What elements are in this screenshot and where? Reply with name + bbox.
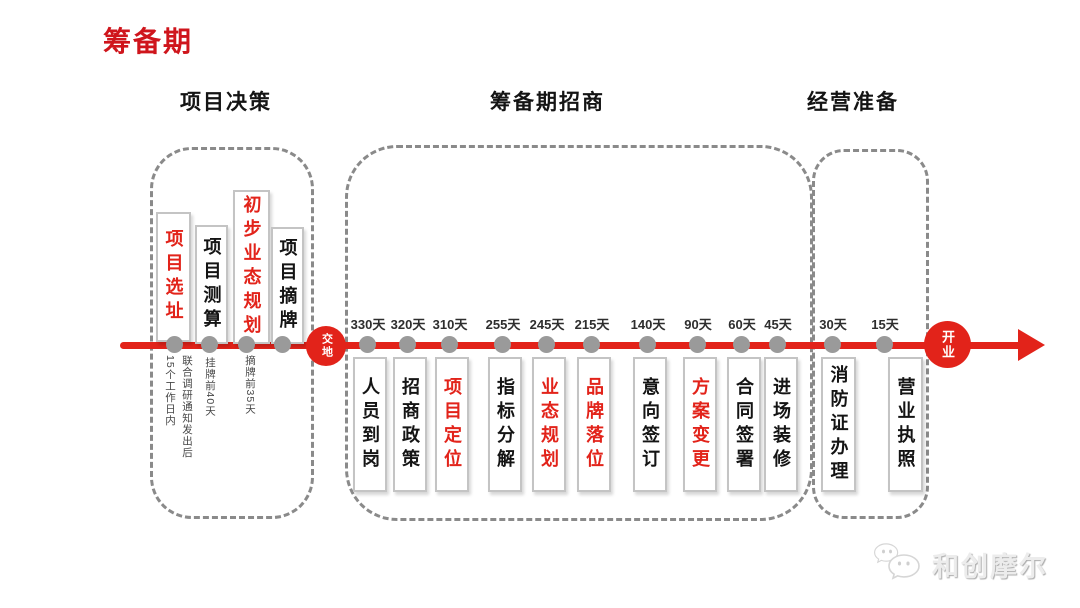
timing-note: 摘牌前35天 xyxy=(240,355,258,435)
section-header-operation: 经营准备 xyxy=(807,86,899,116)
milestone-label: 品牌落位 xyxy=(585,377,603,473)
milestone-box: 进场装修 xyxy=(764,357,798,492)
timeline-node-dot xyxy=(201,336,218,353)
opening-node: 开业 xyxy=(924,321,971,368)
milestone-box: 项目定位 xyxy=(435,357,469,492)
milestone-box: 方案变更 xyxy=(683,357,717,492)
timing-note: 联合调研通知发出后15个工作日内 xyxy=(157,355,195,467)
day-label: 45天 xyxy=(764,314,791,333)
milestone-label: 业态规划 xyxy=(540,377,558,473)
timeline-node-dot xyxy=(689,336,706,353)
milestone-label: 招商政策 xyxy=(401,377,419,473)
milestone-label: 合同签署 xyxy=(735,377,753,473)
day-label: 330天 xyxy=(351,314,386,333)
milestone-box: 人员到岗 xyxy=(353,357,387,492)
timeline-node-dot xyxy=(494,336,511,353)
timeline-node-dot xyxy=(399,336,416,353)
day-label: 30天 xyxy=(819,314,846,333)
day-label: 255天 xyxy=(486,314,521,333)
milestone-label: 意向签订 xyxy=(641,377,659,473)
timeline-node-dot xyxy=(274,336,291,353)
slide-canvas: 筹备期 项目决策 筹备期招商 经营准备 330天 320天 310天 255天 … xyxy=(0,0,1080,608)
milestone-box: 初步业态规划 xyxy=(233,190,270,344)
milestone-box: 营业执照 xyxy=(888,357,923,492)
day-label: 90天 xyxy=(684,314,711,333)
day-label: 310天 xyxy=(433,314,468,333)
timeline-node-dot xyxy=(238,336,255,353)
milestone-box: 品牌落位 xyxy=(577,357,611,492)
milestone-label: 项目选址 xyxy=(165,229,183,325)
milestone-box: 合同签署 xyxy=(727,357,761,492)
milestone-label: 消防证办理 xyxy=(830,365,848,485)
timeline-node-dot xyxy=(166,336,183,353)
milestone-box: 消防证办理 xyxy=(821,357,856,492)
day-label: 215天 xyxy=(575,314,610,333)
milestone-label: 人员到岗 xyxy=(361,377,379,473)
milestone-label: 方案变更 xyxy=(691,377,709,473)
watermark-text: 和创摩尔 xyxy=(932,545,1048,584)
milestone-box: 项目摘牌 xyxy=(271,227,304,344)
day-label: 320天 xyxy=(391,314,426,333)
page-title: 筹备期 xyxy=(103,20,193,60)
milestone-label: 项目测算 xyxy=(203,237,221,333)
timeline-node-dot xyxy=(538,336,555,353)
timeline-node-dot xyxy=(824,336,841,353)
chat-bubbles-logo-icon xyxy=(874,543,924,585)
milestone-box: 业态规划 xyxy=(532,357,566,492)
day-label: 60天 xyxy=(728,314,755,333)
day-label: 15天 xyxy=(871,314,898,333)
timeline-node-dot xyxy=(639,336,656,353)
milestone-label: 进场装修 xyxy=(772,377,790,473)
timeline-node-dot xyxy=(876,336,893,353)
milestone-box: 项目测算 xyxy=(195,225,228,344)
timeline-node-dot xyxy=(583,336,600,353)
land-delivery-node: 交地 xyxy=(306,326,346,366)
milestone-label: 指标分解 xyxy=(496,377,514,473)
timeline-node-dot xyxy=(441,336,458,353)
timeline-node-dot xyxy=(733,336,750,353)
section-header-decision: 项目决策 xyxy=(180,86,272,116)
milestone-box: 招商政策 xyxy=(393,357,427,492)
land-delivery-label: 交地 xyxy=(321,333,332,359)
timeline-node-dot xyxy=(359,336,376,353)
watermark: 和创摩尔 xyxy=(874,543,1048,585)
day-label: 140天 xyxy=(631,314,666,333)
milestone-label: 初步业态规划 xyxy=(243,195,261,339)
section-header-investment: 筹备期招商 xyxy=(490,86,605,116)
day-label: 245天 xyxy=(530,314,565,333)
milestone-box: 意向签订 xyxy=(633,357,667,492)
milestone-box: 项目选址 xyxy=(156,212,191,342)
timeline-node-dot xyxy=(769,336,786,353)
timeline-arrowhead-icon xyxy=(1018,329,1045,361)
milestone-label: 项目定位 xyxy=(443,377,461,473)
timing-note: 挂牌前40天 xyxy=(200,357,218,442)
milestone-box: 指标分解 xyxy=(488,357,522,492)
milestone-label: 项目摘牌 xyxy=(279,238,297,334)
milestone-label: 营业执照 xyxy=(897,377,915,473)
opening-label: 开业 xyxy=(941,330,954,360)
